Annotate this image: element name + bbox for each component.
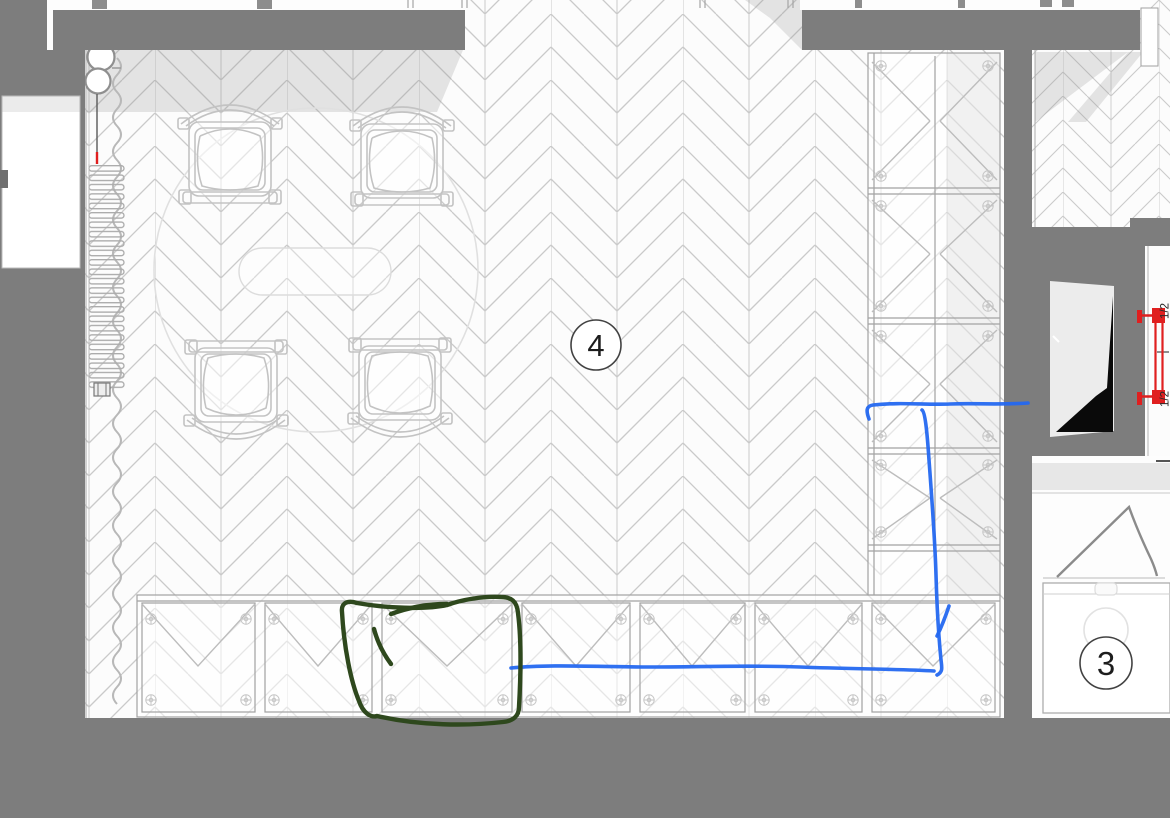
- dimension-label-bottom: 1/2: [1160, 391, 1170, 407]
- radiator: [88, 164, 126, 390]
- wall-top: [53, 10, 465, 50]
- wall-right-divider: [1004, 48, 1032, 718]
- wall-block-object: [1050, 281, 1114, 437]
- valve-icon: [94, 383, 110, 396]
- wall-bottom: [0, 718, 1170, 818]
- room-3-label: 3: [1097, 645, 1115, 682]
- base-cabinets-bottom: [137, 595, 1000, 718]
- wall-top-right: [802, 10, 1140, 50]
- floor-plan-svg: 1/2 1/2 4 3: [0, 0, 1170, 818]
- windowsill-strip: [1141, 8, 1158, 66]
- room-4-label: 4: [587, 328, 604, 363]
- room-3-label-bubble: 3: [1080, 637, 1132, 689]
- dimension-label-top: 1/2: [1160, 303, 1170, 319]
- wall-niche: [0, 96, 80, 268]
- floor-plan-view: 1/2 1/2 4 3: [0, 0, 1170, 818]
- room-4-label-bubble: 4: [571, 320, 621, 370]
